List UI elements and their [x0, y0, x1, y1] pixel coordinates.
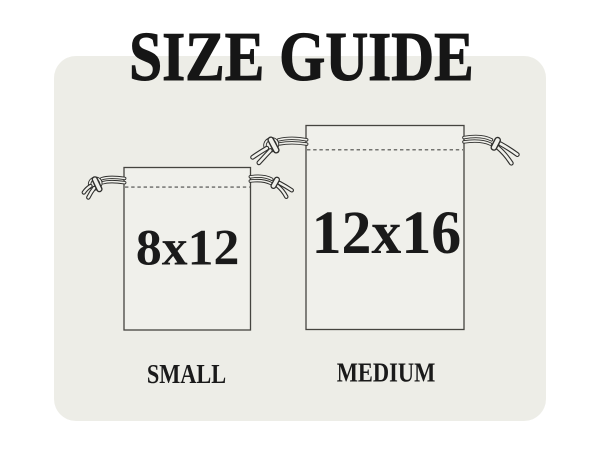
svg-text:8x12: 8x12: [136, 220, 240, 276]
svg-text:SMALL: SMALL: [147, 360, 226, 390]
svg-text:12x16: 12x16: [312, 199, 462, 267]
svg-text:MEDIUM: MEDIUM: [337, 359, 436, 388]
